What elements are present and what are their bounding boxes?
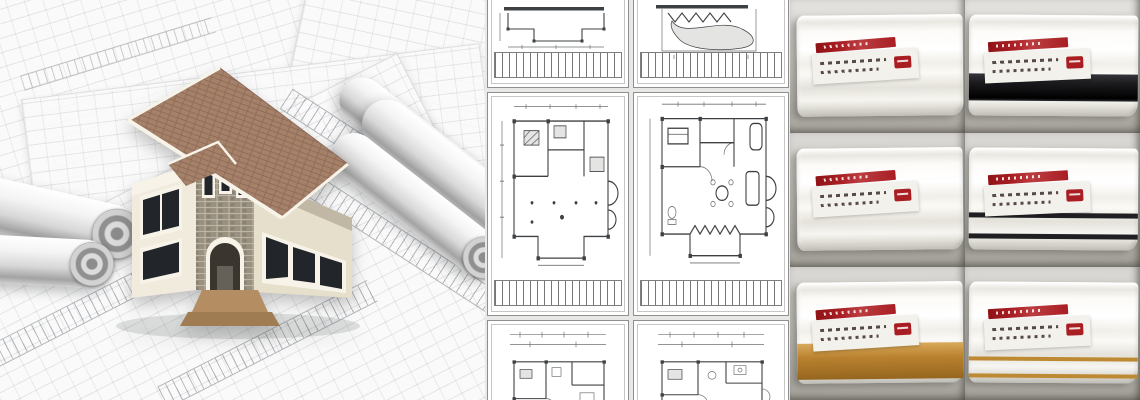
molding-sample-photo	[790, 267, 965, 400]
white-sticker	[984, 316, 1091, 351]
accent-band	[969, 356, 1138, 361]
floorplan-drawing	[492, 97, 624, 311]
molding-board	[796, 14, 963, 117]
door-panel	[217, 266, 233, 290]
brand-logo-mark	[1066, 189, 1084, 202]
legend-strip	[640, 52, 782, 78]
panel-molding-samples-photo	[790, 0, 1140, 400]
panel-blueprint-house-photo	[0, 0, 485, 400]
floorplan-sheet	[633, 320, 789, 400]
panel-floorplan-grid	[485, 0, 790, 400]
sticker-text	[992, 58, 1058, 64]
sample-label	[983, 303, 1097, 352]
sticker-text	[820, 325, 886, 332]
brand-logo-mark	[894, 323, 912, 336]
legend-strip	[494, 52, 622, 78]
sticker-text	[992, 325, 1058, 331]
molding-board	[969, 281, 1139, 383]
sticker-text	[992, 192, 1058, 198]
white-sticker	[984, 182, 1091, 217]
sample-label	[810, 35, 925, 86]
entry-steps	[180, 312, 280, 326]
molding-board	[969, 14, 1139, 116]
floorplan-sheet	[487, 320, 629, 400]
white-sticker	[984, 49, 1091, 84]
white-sticker	[812, 48, 920, 85]
molding-sample-photo	[790, 0, 965, 133]
molding-sample-photo	[790, 133, 965, 267]
molding-sample-photo	[965, 133, 1140, 267]
floorplan-sheet	[487, 0, 629, 88]
legend-strip	[640, 280, 782, 306]
brand-logo-mark	[894, 56, 912, 69]
floorplan-sheet	[633, 0, 789, 88]
banner-collage	[0, 0, 1140, 400]
brand-logo-mark	[894, 189, 912, 202]
floorplan-drawing	[638, 325, 784, 400]
brand-logo-mark	[1066, 323, 1084, 336]
molding-sample-photo	[965, 0, 1140, 133]
white-sticker	[812, 182, 920, 219]
sample-label	[810, 168, 925, 219]
floorplan-drawing	[638, 97, 784, 311]
sticker-text	[820, 58, 886, 65]
sample-label	[983, 169, 1097, 218]
molding-board	[796, 281, 963, 384]
floorplan-drawing	[492, 325, 624, 400]
floorplan-sheet	[487, 92, 629, 316]
molding-board	[796, 147, 963, 251]
legend-strip	[494, 280, 622, 306]
brand-logo-mark	[1066, 56, 1084, 69]
entry-steps	[192, 290, 268, 312]
sample-label	[810, 302, 925, 353]
sticker-text	[820, 192, 886, 199]
house-3d-model	[116, 64, 368, 340]
molding-sample-photo	[965, 267, 1140, 400]
molding-board	[969, 147, 1139, 250]
sample-label	[983, 36, 1097, 85]
floorplan-sheet	[633, 92, 789, 316]
